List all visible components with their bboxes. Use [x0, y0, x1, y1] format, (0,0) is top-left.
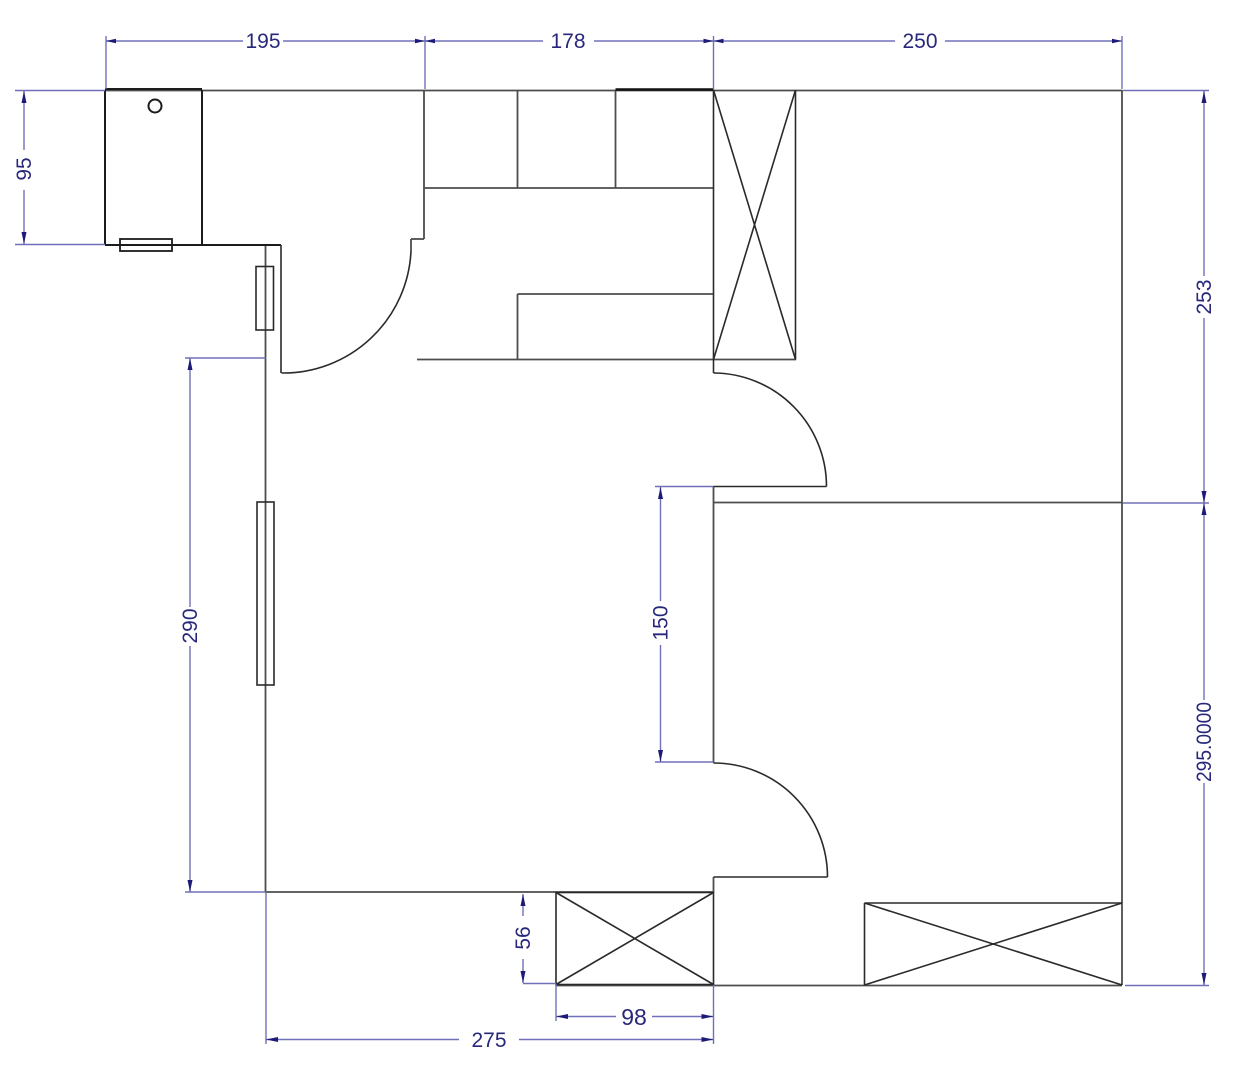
svg-text:290: 290	[179, 608, 202, 643]
svg-text:250: 250	[902, 30, 937, 53]
svg-text:295.0000: 295.0000	[1193, 702, 1216, 782]
svg-text:195: 195	[245, 30, 280, 53]
svg-text:178: 178	[550, 30, 585, 53]
svg-text:98: 98	[621, 1004, 647, 1030]
svg-text:275: 275	[471, 1029, 506, 1052]
svg-text:253: 253	[1193, 279, 1216, 314]
svg-text:95: 95	[13, 157, 36, 180]
svg-text:150: 150	[650, 605, 673, 640]
svg-text:56: 56	[512, 926, 535, 949]
